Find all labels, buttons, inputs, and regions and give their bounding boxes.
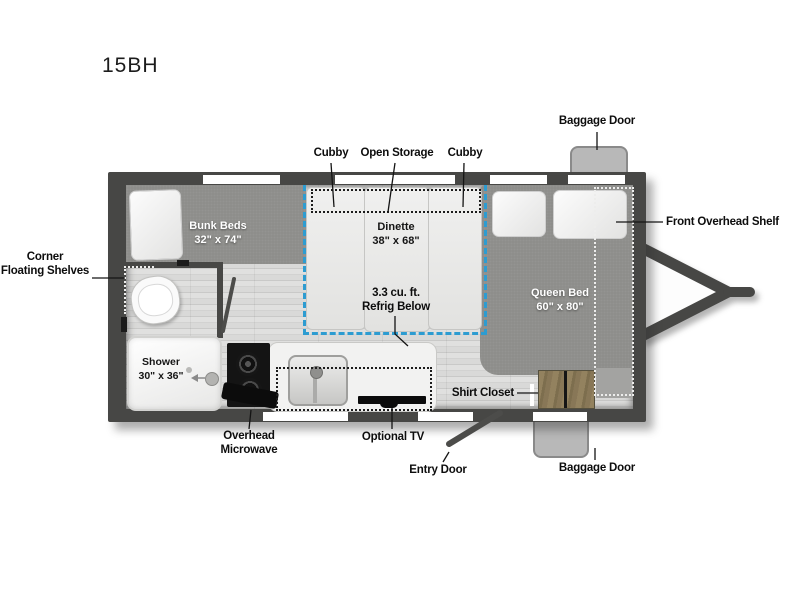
shower-head [205,372,219,386]
entry-door-opening [418,412,473,421]
callout-optional-tv: Optional TV [343,431,443,445]
callout-baggage-door-rear: Baggage Door [542,462,652,476]
callout-shirt-closet: Shirt Closet [448,387,514,401]
callout-baggage-door-front: Baggage Door [542,115,652,129]
window-bottom-front [533,412,587,421]
refrig-line1: 3.3 cu. ft. [341,287,451,301]
shirt-closet [538,370,595,409]
dinette-size: 38" x 68" [346,234,446,248]
hitch-frame-bars [640,247,728,337]
closet-door-divider [564,371,567,408]
microwave-line1: Overhead [199,430,299,444]
corner-shelves-line1: Corner [0,251,90,265]
bathroom-wall-right [217,262,223,338]
callout-refrigerator: 3.3 cu. ft. Refrig Below [341,287,451,314]
microwave-line2: Microwave [199,444,299,458]
callout-corner-floating-shelves: Corner Floating Shelves [0,251,90,278]
leader-entry-door [443,452,449,462]
queen-bed-label: Queen Bed 60" x 80" [500,286,620,315]
dinette-name: Dinette [346,220,446,234]
window-top-bunk [203,175,280,184]
callout-cubby-right: Cubby [425,147,505,161]
queen-bed-name: Queen Bed [500,286,620,300]
burner-front [236,352,260,376]
window-bottom-kitchen [263,412,348,421]
callout-front-overhead-shelf: Front Overhead Shelf [666,216,800,230]
shower-name: Shower [124,356,198,370]
model-title: 15BH [102,54,159,78]
closet-marker [530,384,534,406]
callout-overhead-microwave: Overhead Microwave [199,430,299,457]
callout-entry-door: Entry Door [388,464,488,478]
window-top-front [568,175,625,184]
corner-floating-shelves-outline [124,266,154,314]
shower-size: 30" x 36" [124,370,198,384]
floorplan-canvas: 15BH [0,0,800,600]
towel-bar [177,260,189,266]
corner-shelves-line2: Floating Shelves [0,265,90,279]
window-top-bed [490,175,547,184]
queen-pillow-left [492,191,546,237]
window-top-dinette [335,175,455,184]
wall-marker [121,317,127,332]
bunk-beds-label: Bunk Beds 32" x 74" [158,219,278,248]
bunk-beds-size: 32" x 74" [158,233,278,247]
shower-label: Shower 30" x 36" [124,356,198,383]
optional-tv-mount [380,403,398,408]
bunk-beds-name: Bunk Beds [158,219,278,233]
queen-bed-size: 60" x 80" [500,300,620,314]
cubby-storage-outline [311,189,481,213]
refrig-line2: Refrig Below [341,301,451,315]
dinette-label: Dinette 38" x 68" [346,220,446,249]
refrig-below-outline [276,367,432,411]
